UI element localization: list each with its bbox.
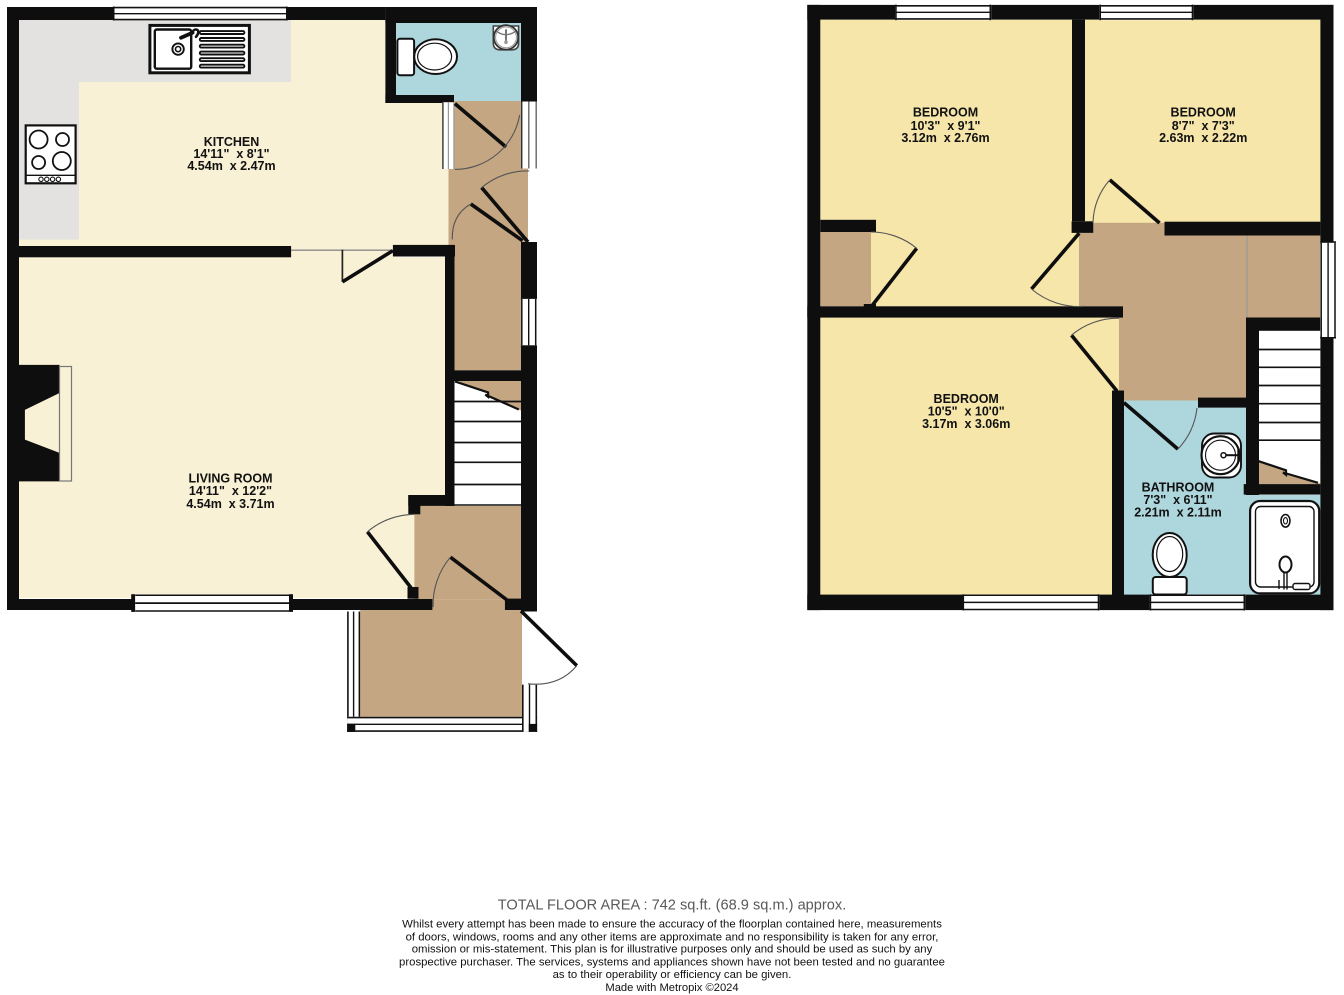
svg-text:2.21m x 2.11m: 2.21m x 2.11m	[1134, 505, 1222, 519]
svg-text:BEDROOM: BEDROOM	[913, 106, 978, 120]
svg-text:2.63m x 2.22m: 2.63m x 2.22m	[1159, 131, 1247, 145]
svg-text:prospective purchaser. The ser: prospective purchaser. The services, sys…	[399, 956, 945, 968]
svg-text:3.12m x 2.76m: 3.12m x 2.76m	[901, 131, 989, 145]
svg-text:Made with Metropix ©2024: Made with Metropix ©2024	[605, 982, 738, 994]
svg-text:Whilst every attempt has been: Whilst every attempt has been made to en…	[402, 919, 942, 931]
svg-text:as to their operability or eff: as to their operability or efficiency ca…	[553, 969, 792, 981]
svg-text:BEDROOM: BEDROOM	[1171, 106, 1236, 120]
svg-text:4.54m x 2.47m: 4.54m x 2.47m	[187, 159, 275, 173]
svg-text:of doors, windows, rooms and a: of doors, windows, rooms and any other i…	[406, 931, 939, 943]
svg-text:TOTAL FLOOR AREA : 742 sq.ft.: TOTAL FLOOR AREA : 742 sq.ft. (68.9 sq.m…	[498, 898, 847, 914]
svg-text:omission or mis-statement. Thi: omission or mis-statement. This plan is …	[412, 944, 933, 956]
svg-text:4.54m x 3.71m: 4.54m x 3.71m	[186, 497, 274, 511]
svg-text:3.17m x 3.06m: 3.17m x 3.06m	[922, 417, 1010, 431]
